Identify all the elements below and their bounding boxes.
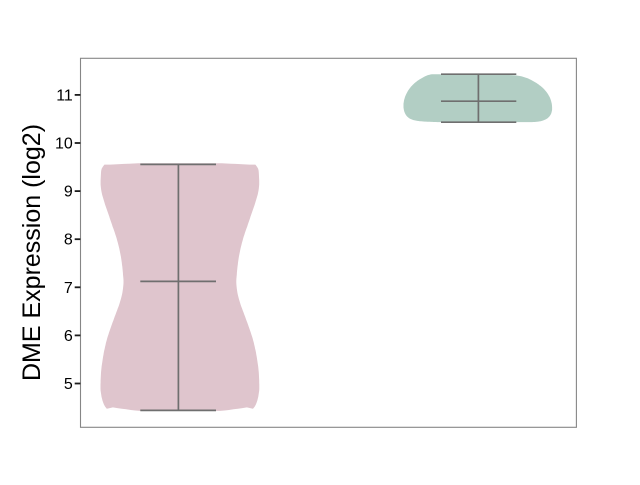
svg-text:5: 5 (64, 376, 73, 393)
svg-text:11: 11 (56, 87, 73, 104)
svg-text:7: 7 (64, 280, 73, 297)
svg-text:10: 10 (55, 136, 73, 153)
svg-text:9: 9 (64, 184, 73, 201)
svg-text:DME Expression (log2): DME Expression (log2) (18, 124, 46, 381)
svg-text:6: 6 (64, 328, 73, 345)
svg-text:8: 8 (64, 232, 73, 249)
